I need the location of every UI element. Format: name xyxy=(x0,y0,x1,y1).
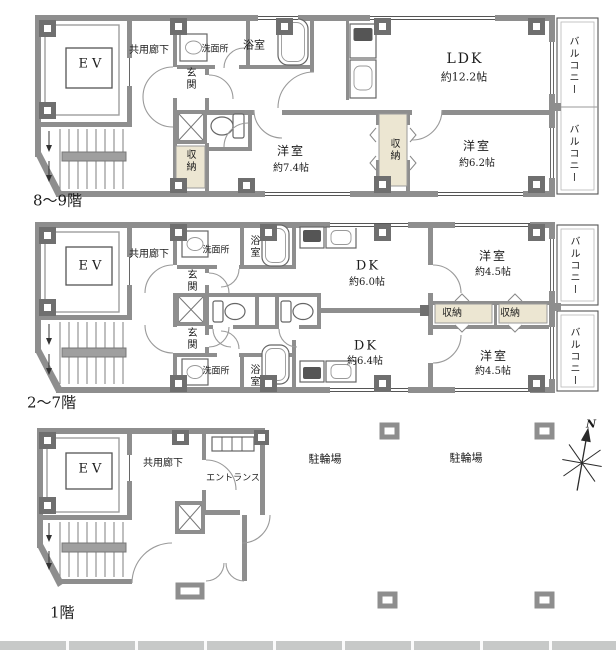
room-label-ev-2-7f: EV xyxy=(79,260,106,273)
room-size-western-e-8-9f: 約6.2帖 xyxy=(459,159,495,169)
room-size-western-ne: 約4.5帖 xyxy=(475,268,511,278)
closet-label-mid-8-9f: 収納 xyxy=(388,138,398,162)
room-label-corridor-2-7f: 共用廊下 xyxy=(129,250,169,260)
kitchen-icon-8-9f xyxy=(350,24,376,98)
room-label-bathroom-a: 浴室 xyxy=(248,235,258,259)
wall-pillar-1f xyxy=(178,585,202,597)
stairs-1f xyxy=(46,522,126,577)
stairs-8-9f xyxy=(46,129,126,189)
floor-label-8-9f: 8〜9階 xyxy=(33,194,82,209)
room-size-dk-south: 約6.4帖 xyxy=(347,357,383,367)
closet-label-a-2-7f: 収納 xyxy=(442,309,462,319)
room-size-dk-north: 約6.0帖 xyxy=(349,278,385,288)
room-label-bathroom-b: 浴室 xyxy=(248,364,258,388)
room-size-western-se: 約4.5帖 xyxy=(475,367,511,377)
balcony-label-n-8-9f: バルコニー xyxy=(567,36,577,96)
room-label-western-e-8-9f: 洋室 xyxy=(463,140,491,152)
floor-label-1f: 1階 xyxy=(50,606,75,621)
room-label-western-ne: 洋室 xyxy=(479,250,507,262)
floorplan-1f xyxy=(30,415,605,650)
room-label-washroom-b: 洗面所 xyxy=(202,368,229,377)
room-label-genkan-b: 玄関 xyxy=(185,327,195,351)
room-size-ldk: 約12.2帖 xyxy=(441,72,488,83)
floor-label-2-7f: 2〜7階 xyxy=(27,396,76,411)
bottom-border-band xyxy=(0,641,616,650)
room-label-ldk: LDK xyxy=(447,52,484,66)
toilet-icons-2-7f xyxy=(213,301,313,322)
area-label-bicycle-parking-1: 駐輪場 xyxy=(309,454,342,465)
room-label-washroom-a: 洗面所 xyxy=(202,247,229,256)
room-label-ev-8-9f: EV xyxy=(79,58,106,71)
room-label-entrance-hall: エントランス xyxy=(206,475,260,484)
shaft-x-icon-2-7f xyxy=(177,295,205,324)
balcony-label-s-2-7f: バルコニー xyxy=(568,327,578,387)
north-label: N xyxy=(586,419,596,430)
stairs-2-7f xyxy=(46,322,126,384)
room-label-bathroom-8-9f: 浴室 xyxy=(243,40,265,51)
room-size-western-w-8-9f: 約7.4帖 xyxy=(273,164,309,174)
room-label-western-se: 洋室 xyxy=(480,350,508,362)
room-label-corridor-1f: 共用廊下 xyxy=(143,459,183,469)
north-arrow-icon xyxy=(557,424,605,494)
room-label-corridor-8-9f: 共用廊下 xyxy=(129,46,169,56)
floorplan-8-9f xyxy=(30,10,605,215)
area-label-bicycle-parking-2: 駐輪場 xyxy=(450,453,483,464)
balcony-label-n-2-7f: バルコニー xyxy=(568,236,578,296)
walls-1f xyxy=(37,428,265,587)
room-label-genkan-8-9f: 玄関 xyxy=(184,67,194,91)
closet-label-b-2-7f: 収納 xyxy=(500,309,520,319)
room-label-genkan-a: 玄関 xyxy=(185,269,195,293)
room-label-western-w-8-9f: 洋室 xyxy=(277,145,305,157)
mailboxes-icon xyxy=(212,437,254,451)
floorplan-page: EV 共用廊下 玄関 洗面所 浴室 LDK 約12.2帖 収納 洋室 約7.4帖… xyxy=(0,0,616,650)
room-label-dk-north: DK xyxy=(356,260,380,273)
room-label-dk-south: DK xyxy=(354,340,378,353)
room-label-ev-1f: EV xyxy=(79,463,106,476)
closet-label-entry-8-9f: 収納 xyxy=(184,149,194,173)
room-label-washroom-8-9f: 洗面所 xyxy=(201,46,228,55)
shaft-x-icon-8-9f xyxy=(177,112,205,142)
shaft-x-icon-1f xyxy=(177,503,203,532)
balcony-label-s-8-9f: バルコニー xyxy=(567,124,577,184)
